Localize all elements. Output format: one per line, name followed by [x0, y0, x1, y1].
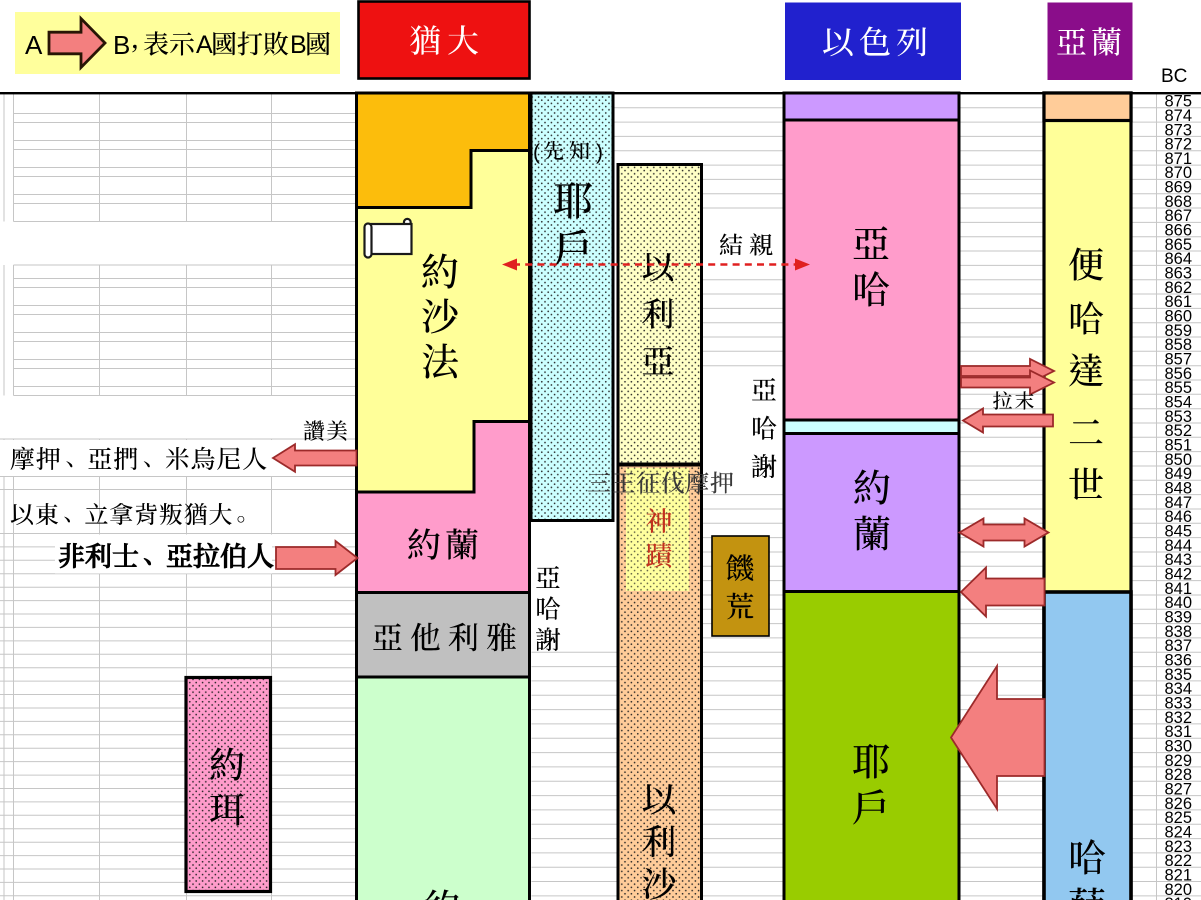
- svg-text:B: B: [113, 30, 130, 60]
- svg-text:819: 819: [1164, 895, 1192, 900]
- svg-text:BC: BC: [1161, 66, 1187, 87]
- svg-text:(: (: [533, 141, 540, 164]
- svg-text:B: B: [290, 31, 307, 59]
- svg-text:A: A: [25, 30, 43, 60]
- svg-text:A: A: [196, 31, 213, 59]
- svg-text:): ): [596, 141, 603, 164]
